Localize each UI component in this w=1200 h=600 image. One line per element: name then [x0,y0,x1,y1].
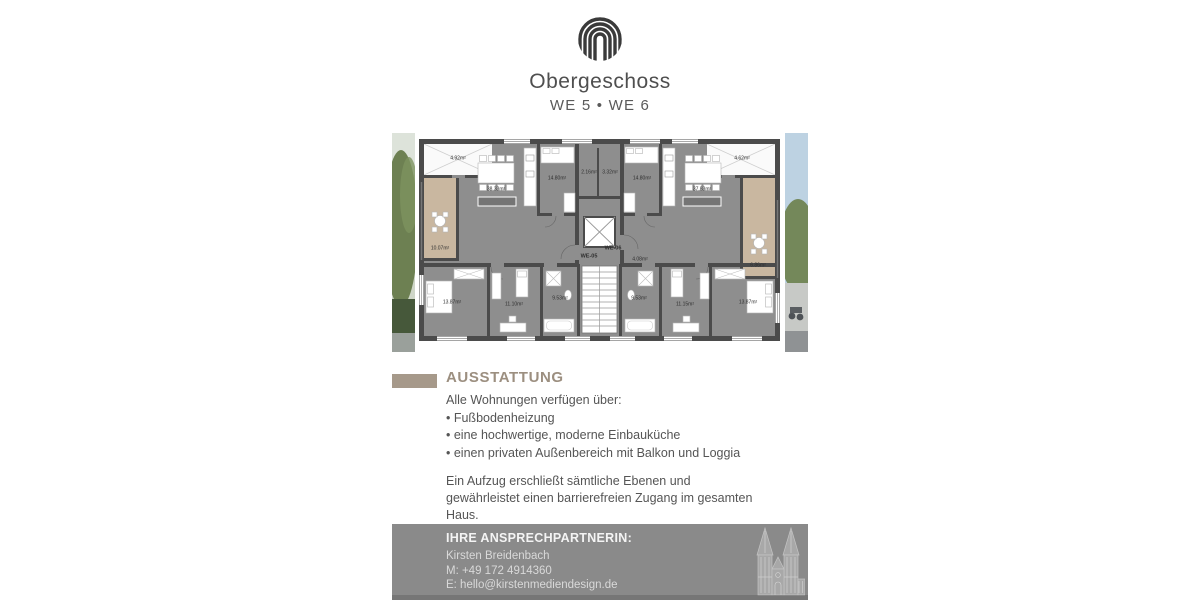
cathedral-icon [753,527,805,597]
floorplan-image: 4.92m²10.07m²38.33m²14.80m²13.87m²11.10m… [392,133,808,352]
page-title: Obergeschoss [392,70,808,94]
contact-mobile: M: +49 172 4914360 [446,564,632,579]
elevator [584,217,615,247]
features-list: Alle Wohnungen verfügen über: • Fußboden… [446,392,776,462]
features-intro: Alle Wohnungen verfügen über: [446,392,776,410]
floorplan-drawing [392,133,808,352]
staircase [582,266,617,333]
ausstattung-heading: AUSSTATTUNG [446,369,564,386]
feature-item: • einen privaten Außenbereich mit Balkon… [446,445,776,463]
page-subtitle: WE 5 • WE 6 [392,97,808,114]
accent-bar [392,374,437,388]
contact-email: E: hello@kirstenmediendesign.de [446,578,632,593]
feature-item: • Fußbodenheizung [446,410,776,428]
left-photo-trees [392,133,418,352]
content-column: Obergeschoss WE 5 • WE 6 [392,0,808,600]
flyer-page: Obergeschoss WE 5 • WE 6 [0,0,1200,600]
elevator-paragraph: Ein Aufzug erschließt sämtliche Ebenen u… [446,473,766,524]
contact-block: IHRE ANSPRECHPARTNERIN: Kirsten Breidenb… [446,531,632,593]
contact-name: Kirsten Breidenbach [446,549,632,564]
contact-heading: IHRE ANSPRECHPARTNERIN: [446,531,632,545]
footer-shadow [392,595,808,600]
arches-logo-icon [576,13,624,63]
contact-footer: IHRE ANSPRECHPARTNERIN: Kirsten Breidenb… [392,524,808,600]
feature-item: • eine hochwertige, moderne Einbauküche [446,427,776,445]
